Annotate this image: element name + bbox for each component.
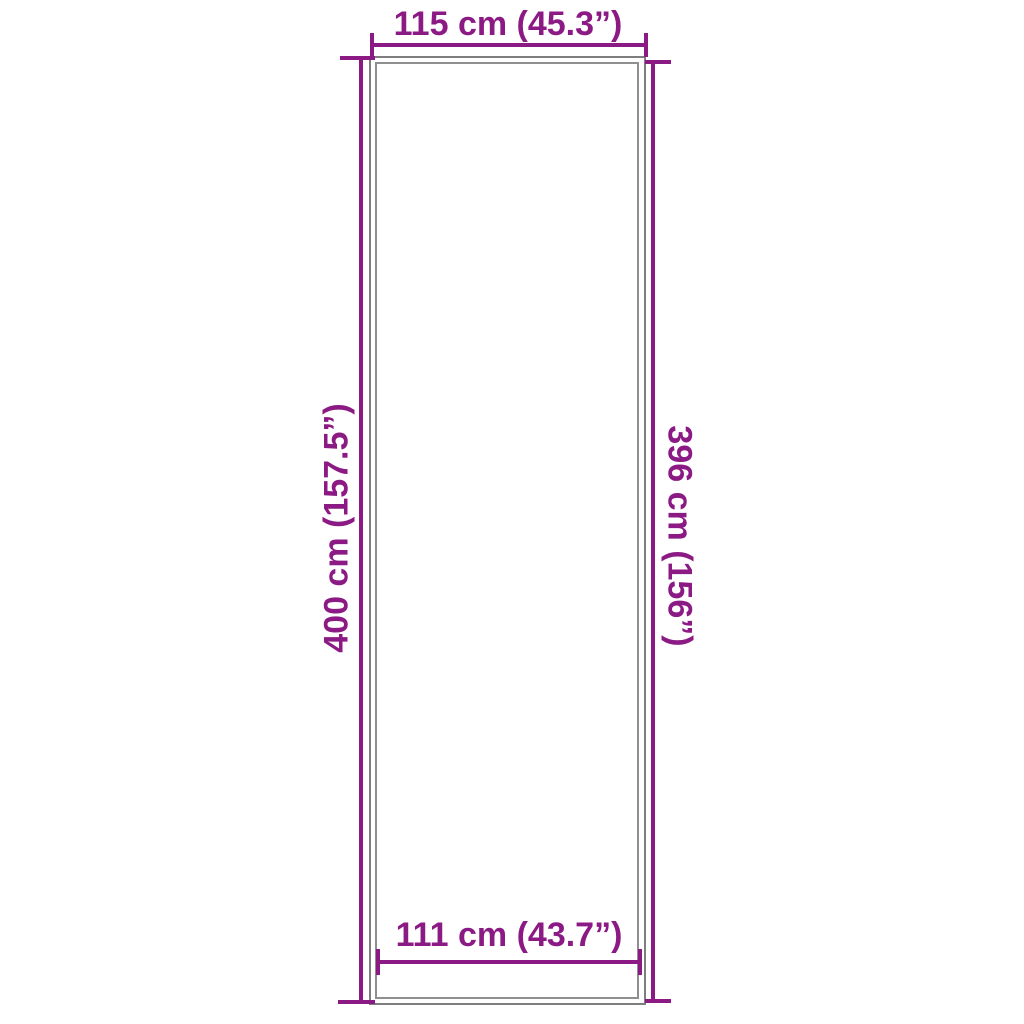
right-dimension-bottom-tick	[645, 999, 671, 1003]
bottom-dimension-line	[376, 960, 642, 964]
dimension-diagram: 115 cm (45.3”) 400 cm (157.5”) 396 cm (1…	[0, 0, 1024, 1024]
left-dimension-label: 400 cm (157.5”)	[317, 403, 356, 653]
left-dimension-line	[359, 56, 363, 1004]
right-dimension-line	[651, 60, 655, 1003]
right-dimension-top-tick	[645, 60, 671, 64]
left-dimension-bottom-tick	[338, 1000, 375, 1004]
left-dimension-top-tick	[340, 56, 375, 60]
top-dimension-label: 115 cm (45.3”)	[369, 5, 647, 44]
right-dimension-label: 396 cm (156”)	[659, 425, 698, 646]
product-outline-inner	[375, 62, 639, 999]
bottom-dimension-label: 111 cm (43.7”)	[376, 916, 642, 955]
